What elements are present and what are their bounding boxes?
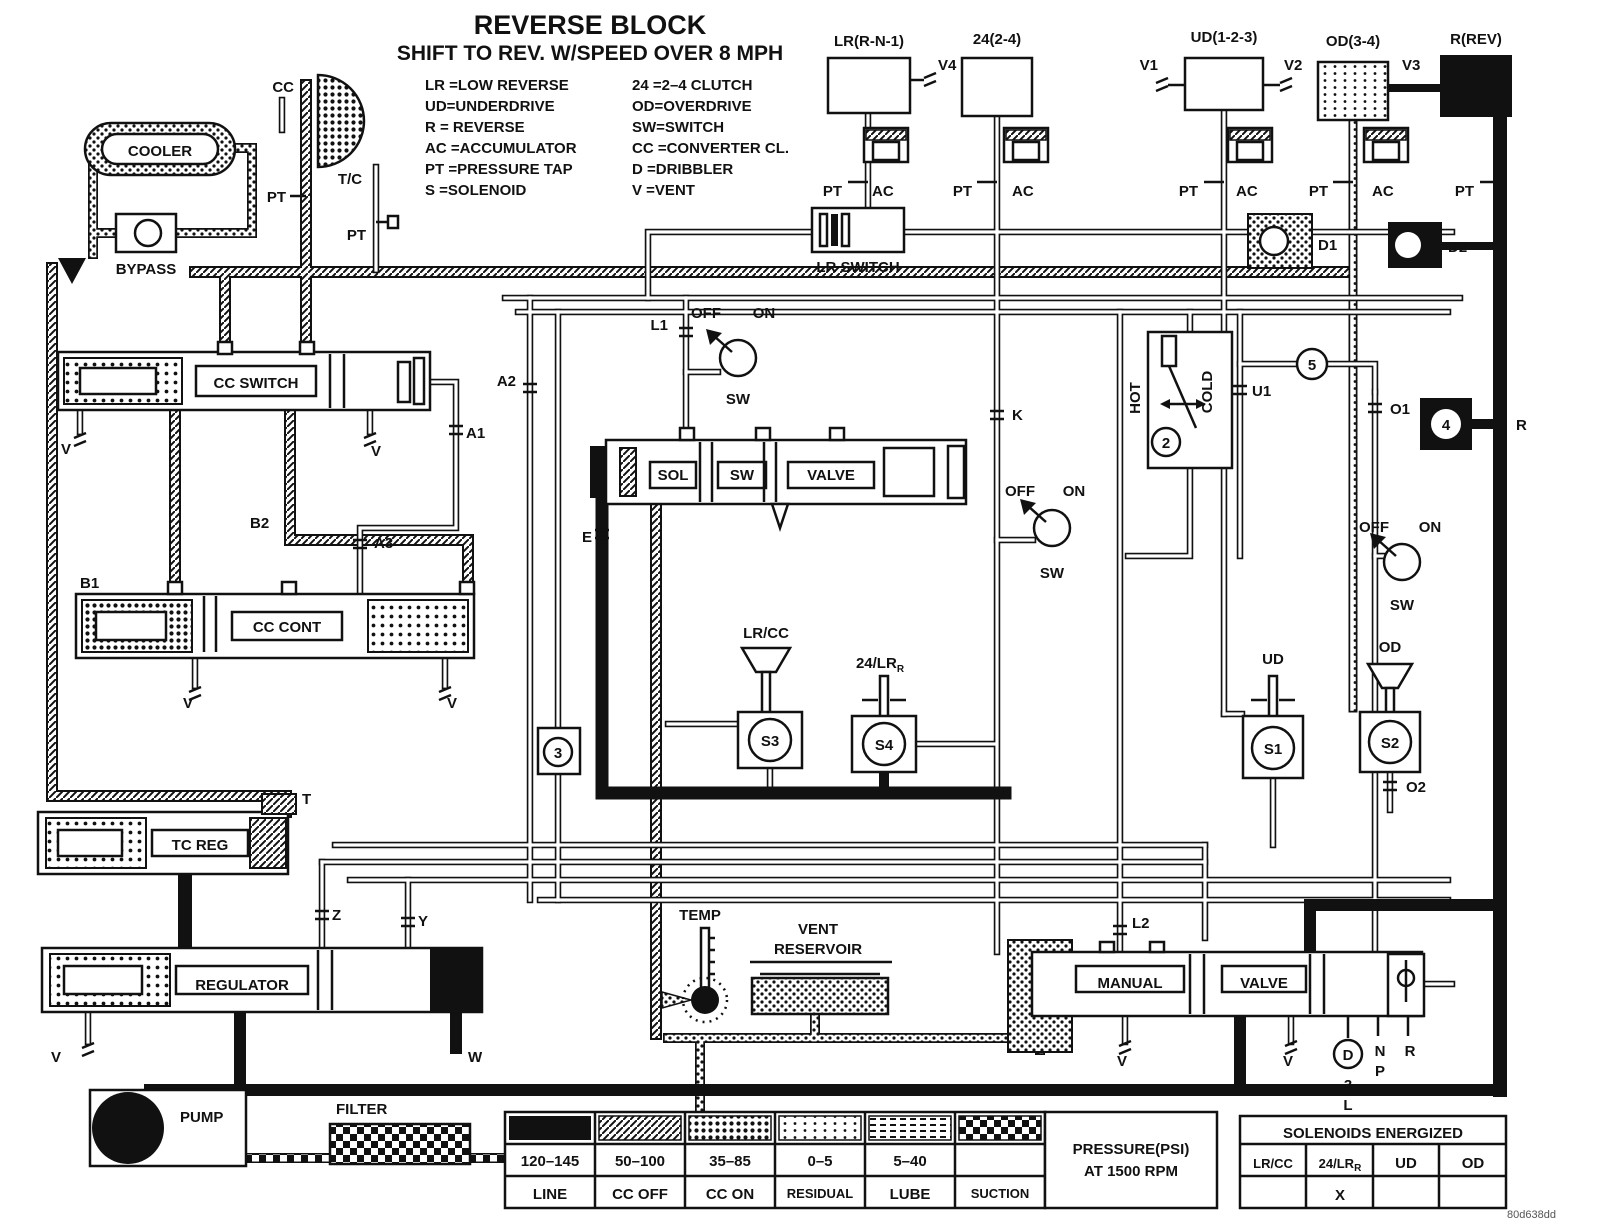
vent-v3-label: V3 — [1402, 57, 1420, 74]
tc-label: T/C — [338, 171, 362, 188]
circuit-24-label: 24(2-4) — [973, 31, 1021, 48]
s3-circuit-label: LR/CC — [743, 625, 789, 642]
d1-label: D1 — [1318, 237, 1337, 254]
name-suction: SUCTION — [971, 1186, 1030, 1201]
range-cc-on: 35–85 — [709, 1153, 751, 1170]
abbrev-10: CC =CONVERTER CL. — [632, 140, 789, 157]
name-residual: RESIDUAL — [787, 1186, 854, 1201]
l1-label: L1 — [650, 317, 668, 334]
thermal-valve — [1148, 332, 1232, 468]
sol-sw-valve — [590, 428, 966, 528]
dribbler-d2 — [1388, 222, 1442, 268]
sw-label-1: SW — [726, 391, 751, 408]
sump-arrow — [58, 258, 86, 284]
manual-label: MANUAL — [1098, 975, 1163, 992]
abbrev-5: PT =PRESSURE TAP — [425, 161, 573, 178]
t-label: T — [302, 791, 311, 808]
abbrev-7: 24 =2–4 CLUTCH — [632, 77, 752, 94]
swatch-cc-off — [599, 1116, 681, 1140]
valve-label-manual: VALVE — [1240, 975, 1288, 992]
temp-label: TEMP — [679, 907, 721, 924]
cc-switch-label: CC SWITCH — [214, 375, 299, 392]
a3-label: A3 — [374, 535, 393, 552]
lr-switch — [812, 208, 904, 252]
y-label: Y — [418, 913, 428, 930]
name-cc-off: CC OFF — [612, 1186, 668, 1203]
k-label: K — [1012, 407, 1023, 424]
solenoid-s4 — [852, 676, 916, 772]
d2-label: D2 — [1448, 239, 1467, 256]
vent-v1-label: V1 — [1140, 57, 1158, 74]
hydraulic-diagram: REVERSE BLOCK SHIFT TO REV. W/SPEED OVER… — [0, 0, 1600, 1220]
v-label-ccsw-r: V — [371, 443, 381, 460]
manual-valve — [1008, 940, 1424, 1052]
abbrev-11: D =DRIBBLER — [632, 161, 733, 178]
v-label-cccont-l: V — [183, 695, 193, 712]
lr-switch-label: LR SWITCH — [816, 259, 899, 276]
swatch-suction — [959, 1116, 1041, 1140]
abbrev-9: SW=SWITCH — [632, 119, 724, 136]
solenoid-col-24lr-main: 24/LR — [1319, 1156, 1355, 1171]
on-label-1: ON — [753, 305, 776, 322]
range-cc-off: 50–100 — [615, 1153, 665, 1170]
pt-label-r: PT — [1455, 183, 1474, 200]
ud-clutch-circuit — [1156, 58, 1292, 110]
s4-label: S4 — [875, 737, 894, 754]
abbrev-6: S =SOLENOID — [425, 182, 526, 199]
solenoid-s3 — [738, 648, 802, 768]
lr-clutch-circuit — [828, 58, 936, 113]
vent-reservoir — [750, 962, 892, 1014]
abbrev-1: LR =LOW REVERSE — [425, 77, 569, 94]
r-port-label: R — [1516, 417, 1527, 434]
accumulator-od — [1364, 128, 1408, 162]
cc-label: CC — [272, 79, 294, 96]
vent-regulator — [82, 1043, 94, 1056]
swatch-line — [509, 1116, 591, 1140]
off-label-2: OFF — [1005, 483, 1035, 500]
v-label-man-r: V — [1283, 1053, 1293, 1070]
24-clutch-circuit — [962, 58, 1032, 116]
pos-n-label: N — [1375, 1043, 1386, 1060]
z-label: Z — [332, 907, 341, 924]
pump-label: PUMP — [180, 1109, 223, 1126]
page-subtitle: SHIFT TO REV. W/SPEED OVER 8 MPH — [397, 42, 783, 65]
w-label: W — [468, 1049, 483, 1066]
valve-label-sol: VALVE — [807, 467, 855, 484]
vent-reservoir-label-2: RESERVOIR — [774, 941, 862, 958]
pt-label-cc: PT — [267, 189, 286, 206]
pos-3-label: 3 — [1344, 1077, 1352, 1094]
vent-reservoir-label-1: VENT — [798, 921, 838, 938]
lr24-sub: R — [897, 664, 905, 675]
a1-label: A1 — [466, 425, 485, 442]
a2-label: A2 — [497, 373, 516, 390]
pt-label-lr: PT — [823, 183, 842, 200]
accumulator-ud — [1228, 128, 1272, 162]
s3-label: S3 — [761, 733, 779, 750]
circuit-lr-label: LR(R-N-1) — [834, 33, 904, 50]
od-clutch-circuit — [1318, 62, 1400, 120]
bypass-label: BYPASS — [116, 261, 177, 278]
swatch-cc-on — [689, 1116, 771, 1140]
sw-label-2: SW — [1040, 565, 1065, 582]
sol-valve-vent-point — [772, 504, 788, 528]
regulator-label: REGULATOR — [195, 977, 289, 994]
pressure-note-2: AT 1500 RPM — [1084, 1163, 1178, 1180]
dribbler-d1 — [1248, 214, 1312, 268]
swatch-lube — [869, 1116, 951, 1140]
od-sol-label: OD — [1379, 639, 1402, 656]
reverse-clutch-circuit — [1440, 55, 1512, 117]
ac-label-od: AC — [1372, 183, 1394, 200]
pos-l-label: L — [1343, 1097, 1352, 1114]
cooler-label: COOLER — [128, 143, 192, 160]
torque-converter — [318, 75, 364, 167]
off-label-3: OFF — [1359, 519, 1389, 536]
pos-r-label: R — [1405, 1043, 1416, 1060]
v-label-ccsw-l: V — [61, 441, 71, 458]
solenoids-energized-table: SOLENOIDS ENERGIZED LR/CC 24/LRR UD OD X — [1240, 1116, 1506, 1208]
abbrev-2: UD=UNDERDRIVE — [425, 98, 555, 115]
s1-label: S1 — [1264, 741, 1282, 758]
accumulator-24 — [1004, 128, 1048, 162]
name-lube: LUBE — [890, 1186, 931, 1203]
v-label-reg: V — [51, 1049, 61, 1066]
cold-label: COLD — [1199, 371, 1216, 414]
l2-label: L2 — [1132, 915, 1150, 932]
vent-cc-switch-left — [74, 433, 86, 446]
circuit-ud-label: UD(1-2-3) — [1191, 29, 1258, 46]
range-line: 120–145 — [521, 1153, 579, 1170]
accumulator-lr — [864, 128, 908, 162]
b1-label: B1 — [80, 575, 99, 592]
pump — [90, 1090, 246, 1166]
b2-label: B2 — [250, 515, 269, 532]
o2-label: O2 — [1406, 779, 1426, 796]
range-residual: 0–5 — [807, 1153, 832, 1170]
solenoid-col-od: OD — [1462, 1155, 1485, 1172]
checkball-2-label: 2 — [1162, 435, 1170, 452]
solenoid-col-ud: UD — [1395, 1155, 1417, 1172]
s4-circuit-label: 24/LRR — [856, 655, 905, 675]
vent-v4-label: V4 — [938, 57, 957, 74]
checkball-3-label: 3 — [554, 745, 562, 762]
pos-d-label: D — [1343, 1047, 1354, 1064]
ac-label-ud: AC — [1236, 183, 1258, 200]
pressure-note-1: PRESSURE(PSI) — [1073, 1141, 1190, 1158]
hot-label: HOT — [1127, 382, 1144, 414]
temp-sensor — [662, 928, 727, 1022]
o1-label: O1 — [1390, 401, 1410, 418]
pos-p-label: P — [1375, 1063, 1385, 1080]
sw-label-3: SW — [1390, 597, 1415, 614]
pt-label-24: PT — [953, 183, 972, 200]
v-label-cccont-r: V — [447, 695, 457, 712]
range-lube: 5–40 — [893, 1153, 926, 1170]
circuit-od-label: OD(3-4) — [1326, 33, 1380, 50]
tc-reg-valve — [38, 794, 296, 874]
solenoid-col-24lr-sub: R — [1354, 1163, 1362, 1174]
e-label: E — [582, 529, 592, 546]
lrcc-text: LR/CC — [743, 625, 789, 642]
page-title: REVERSE BLOCK — [474, 10, 707, 40]
pt-label-ud: PT — [1179, 183, 1198, 200]
cc-pressure-lines — [52, 85, 1348, 1034]
solenoid-val-24lr: X — [1335, 1187, 1345, 1204]
off-label-1: OFF — [691, 305, 721, 322]
abbrev-12: V =VENT — [632, 182, 695, 199]
circuit-rev-label: R(REV) — [1450, 31, 1502, 48]
u1-label: U1 — [1252, 383, 1271, 400]
checkball-5-label: 5 — [1308, 357, 1316, 374]
sw-label-valve: SW — [730, 467, 755, 484]
name-cc-on: CC ON — [706, 1186, 754, 1203]
on-label-2: ON — [1063, 483, 1086, 500]
vent-v2-label: V2 — [1284, 57, 1302, 74]
swatch-residual — [779, 1116, 861, 1140]
solenoid-s2 — [1360, 664, 1420, 772]
filter — [330, 1124, 470, 1164]
schematic-page: REVERSE BLOCK SHIFT TO REV. W/SPEED OVER… — [0, 0, 1600, 1220]
ac-label-lr: AC — [872, 183, 894, 200]
ud-sol-label: UD — [1262, 651, 1284, 668]
checkball-4-label: 4 — [1442, 417, 1451, 434]
pt-label-od: PT — [1309, 183, 1328, 200]
abbrev-8: OD=OVERDRIVE — [632, 98, 752, 115]
ac-label-24: AC — [1012, 183, 1034, 200]
tc-reg-label: TC REG — [172, 837, 229, 854]
abbrev-3: R = REVERSE — [425, 119, 525, 136]
pt-label-tc: PT — [347, 227, 366, 244]
v-label-man-l: V — [1117, 1053, 1127, 1070]
name-line: LINE — [533, 1186, 567, 1203]
pressure-legend-table: 120–145 50–100 35–85 0–5 5–40 LINE CC OF… — [505, 1112, 1217, 1208]
cc-cont-label: CC CONT — [253, 619, 321, 636]
solenoid-s1 — [1243, 676, 1303, 778]
solenoid-col-lrcc: LR/CC — [1253, 1156, 1293, 1171]
sol-label: SOL — [658, 467, 689, 484]
solenoid-table-title: SOLENOIDS ENERGIZED — [1283, 1125, 1463, 1142]
lr24-text: 24/LR — [856, 655, 897, 672]
on-label-3: ON — [1419, 519, 1442, 536]
filter-label: FILTER — [336, 1101, 388, 1118]
abbrev-4: AC =ACCUMULATOR — [425, 140, 577, 157]
s2-label: S2 — [1381, 735, 1399, 752]
watermark: 80d638dd — [1507, 1209, 1556, 1220]
